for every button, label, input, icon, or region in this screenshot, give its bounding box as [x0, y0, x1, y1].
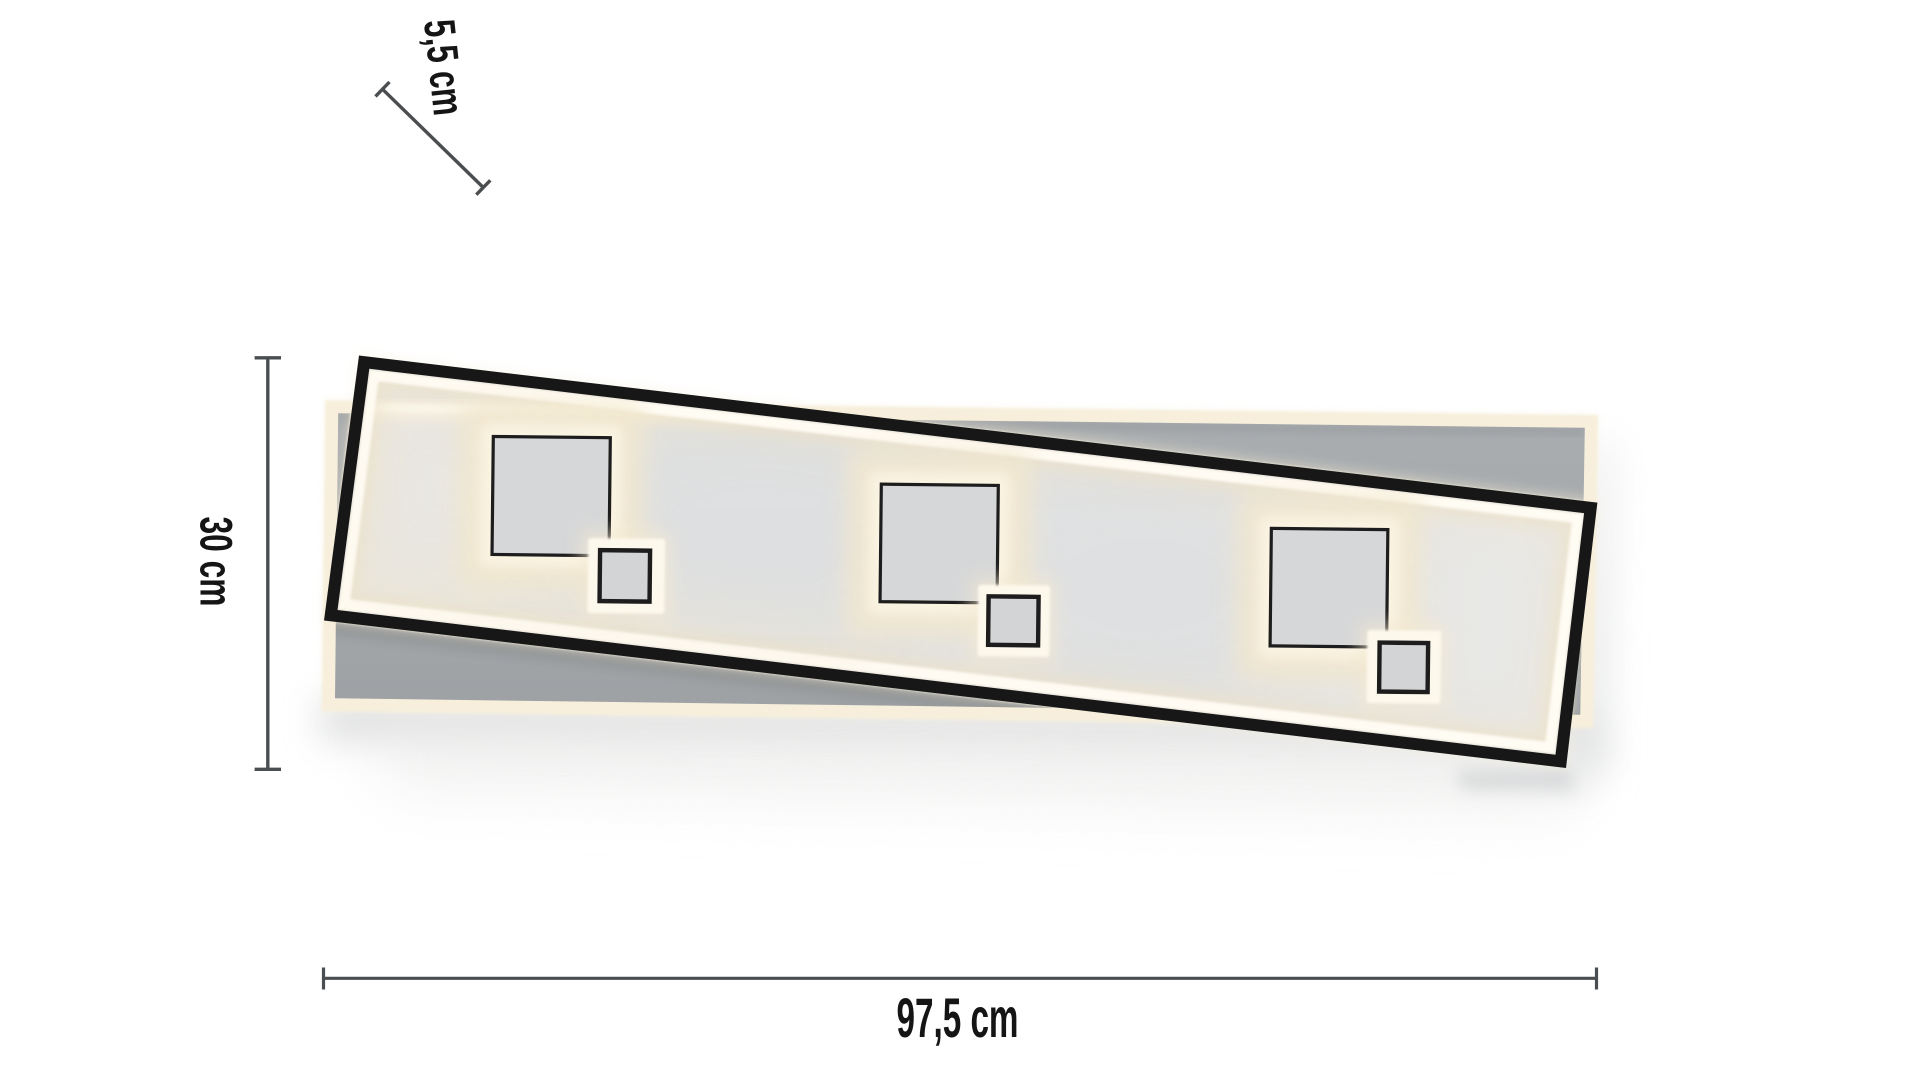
- svg-text:5,5 cm: 5,5 cm: [414, 17, 473, 118]
- svg-text:97,5 cm: 97,5 cm: [897, 986, 1019, 1049]
- svg-text:30 cm: 30 cm: [191, 517, 242, 607]
